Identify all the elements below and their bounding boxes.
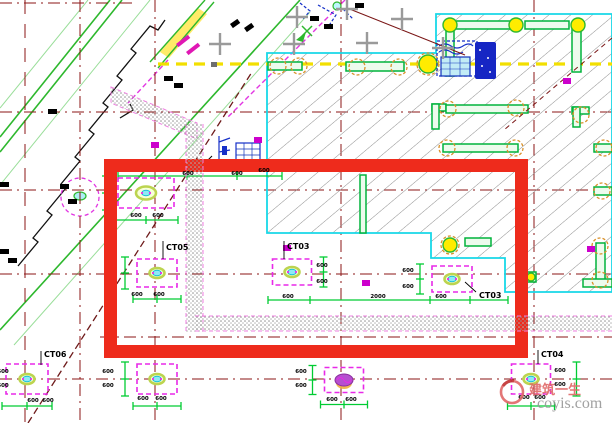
wall-segment: [573, 107, 580, 127]
pile-dot: [30, 378, 32, 380]
dim-text: 600: [282, 294, 294, 300]
column-joint-circle: [443, 18, 457, 32]
dim-text: 600: [152, 213, 164, 219]
wall-segment: [596, 243, 605, 281]
wall-segment: [346, 62, 404, 71]
annotation-blob: [68, 199, 77, 204]
annotation-blob: [164, 76, 173, 81]
column-joint-circle: [443, 238, 457, 252]
pile-dot: [534, 378, 536, 380]
dim-text: 600: [402, 268, 414, 274]
wall-segment: [465, 238, 491, 246]
pile-cap-label: CT03: [479, 291, 501, 300]
annotation-blob: [8, 258, 17, 263]
annotation-blob: [211, 62, 217, 67]
section-table: [441, 57, 470, 76]
dim-text: 600: [131, 292, 143, 298]
dim-text: 600: [0, 369, 9, 375]
dim-text: 600: [326, 397, 338, 403]
wall-segment: [360, 175, 366, 233]
dim-text: 600: [258, 168, 270, 174]
magenta-block-mark: [563, 78, 571, 84]
magenta-block-mark: [587, 246, 595, 252]
pile-cap-label: CT03: [287, 242, 309, 251]
pile-dot: [152, 378, 154, 380]
wall-segment: [525, 21, 569, 29]
annotation-blob: [324, 24, 333, 29]
blue-solid-block: [475, 42, 496, 79]
dim-text: 600: [402, 284, 414, 290]
annotation-blob: [310, 16, 319, 21]
dim-text: 600: [27, 398, 39, 404]
annotation-blob: [355, 3, 364, 8]
horizontal-strip: [195, 316, 612, 331]
dim-text: 600: [231, 171, 243, 177]
dim-text: 600: [102, 383, 114, 389]
dim-text: 600: [435, 294, 447, 300]
dim-text: 600: [153, 292, 165, 298]
magenta-block-mark: [254, 137, 262, 143]
column-joint-circle: [571, 18, 585, 32]
vertical-strip: [186, 124, 203, 332]
dim-text: 600: [295, 369, 307, 375]
pile-dot: [160, 378, 162, 380]
dim-text: 600: [137, 396, 149, 402]
pile-dot: [149, 192, 151, 194]
pile-dot: [141, 192, 143, 194]
wall-segment: [446, 105, 528, 113]
dim-text: 600: [155, 396, 167, 402]
magenta-block-mark: [362, 280, 370, 286]
column-joint-circle: [509, 18, 523, 32]
pile-dot: [160, 272, 162, 274]
wall-segment: [572, 28, 581, 72]
wall-segment: [432, 104, 439, 129]
pile-cap-label: CT06: [44, 350, 67, 359]
annotation-blob: [48, 109, 57, 114]
pile-dot: [152, 272, 154, 274]
pile-dot: [22, 378, 24, 380]
column-joint-circle: [527, 273, 535, 281]
dot: [489, 71, 491, 73]
annotation-blob: [60, 184, 69, 189]
dim-text: 600: [345, 397, 357, 403]
watermark-en-text: coyis.com: [537, 395, 603, 412]
dot: [481, 65, 483, 67]
pile-dot: [526, 378, 528, 380]
annotation-blob: [0, 249, 9, 254]
cad-canvas: 6006006006006006006006006006002000600600…: [0, 0, 612, 423]
pile-cap-label: CT05: [166, 243, 189, 252]
dim-text: 600: [554, 368, 566, 374]
dot: [487, 57, 489, 59]
pile-dot: [287, 271, 289, 273]
pile-dot: [295, 271, 297, 273]
dim-text: 600: [316, 279, 328, 285]
wall-segment: [455, 21, 511, 29]
annotation-blob: [174, 83, 183, 88]
pile-cap-label: CT04: [541, 350, 564, 359]
dim-text: 600: [42, 398, 54, 404]
annotation-blob: [0, 182, 9, 187]
dim-text: 600: [316, 263, 328, 269]
dim-text: 600: [182, 171, 194, 177]
pile-dot: [455, 278, 457, 280]
dim-text: 600: [0, 383, 9, 389]
pile-dot: [447, 278, 449, 280]
dot: [479, 49, 481, 51]
dim-text: 600: [295, 383, 307, 389]
dim-text: 600: [102, 369, 114, 375]
column-joint-circle: [419, 55, 437, 73]
dim-text: 2000: [370, 294, 385, 300]
blue-solid-mark: [222, 146, 227, 155]
cad-drawing-screenshot: 6006006006006006006006006006002000600600…: [0, 0, 612, 423]
dim-text: 600: [130, 213, 142, 219]
magenta-block-mark: [151, 142, 159, 148]
